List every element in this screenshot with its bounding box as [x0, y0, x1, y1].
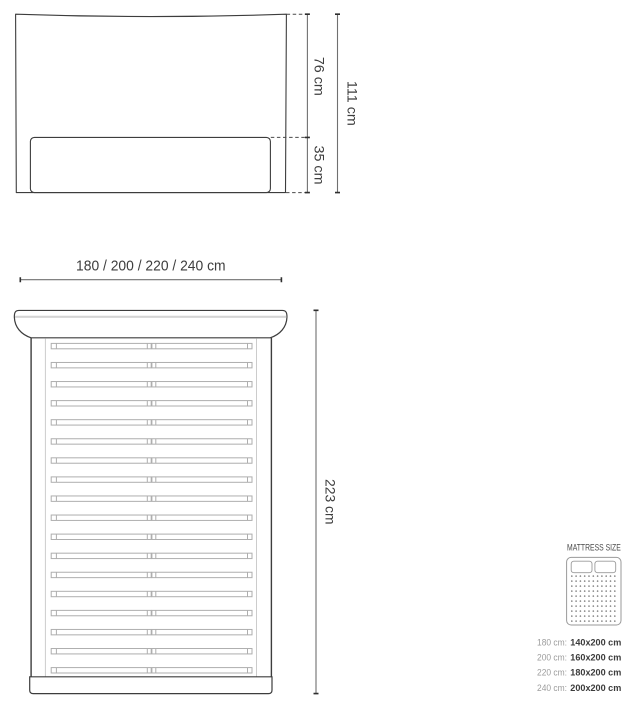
svg-text:35 cm: 35 cm: [312, 146, 328, 185]
svg-text:220 cm:: 220 cm:: [537, 667, 567, 678]
svg-text:140x200 cm: 140x200 cm: [570, 637, 621, 648]
svg-text:180 cm:: 180 cm:: [537, 637, 567, 648]
svg-text:MATTRESS SIZE: MATTRESS SIZE: [567, 543, 621, 553]
svg-text:200x200 cm: 200x200 cm: [570, 682, 621, 693]
svg-text:180 / 200 / 220 / 240 cm: 180 / 200 / 220 / 240 cm: [76, 258, 226, 275]
svg-text:76 cm: 76 cm: [312, 57, 328, 96]
svg-text:180x200 cm: 180x200 cm: [570, 667, 621, 678]
svg-text:240 cm:: 240 cm:: [537, 682, 567, 693]
svg-text:111 cm: 111 cm: [344, 81, 360, 126]
svg-text:223 cm: 223 cm: [323, 479, 339, 525]
svg-text:160x200 cm: 160x200 cm: [570, 652, 621, 663]
svg-text:200 cm:: 200 cm:: [537, 652, 567, 663]
